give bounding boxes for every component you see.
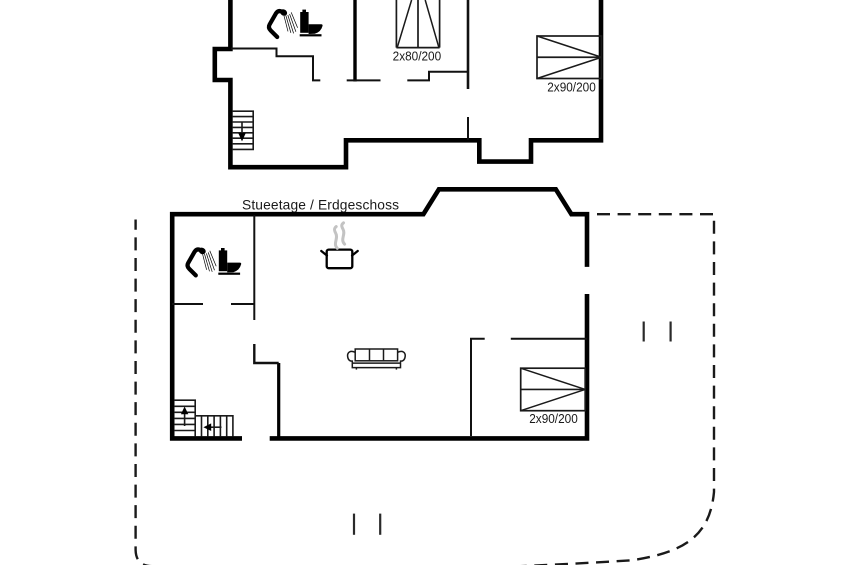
svg-text:2x90/200: 2x90/200 (547, 81, 596, 95)
svg-text:2x80/200: 2x80/200 (393, 50, 442, 64)
svg-text:2x90/200: 2x90/200 (529, 412, 578, 426)
svg-text:Stueetage / Erdgeschoss: Stueetage / Erdgeschoss (242, 197, 399, 212)
